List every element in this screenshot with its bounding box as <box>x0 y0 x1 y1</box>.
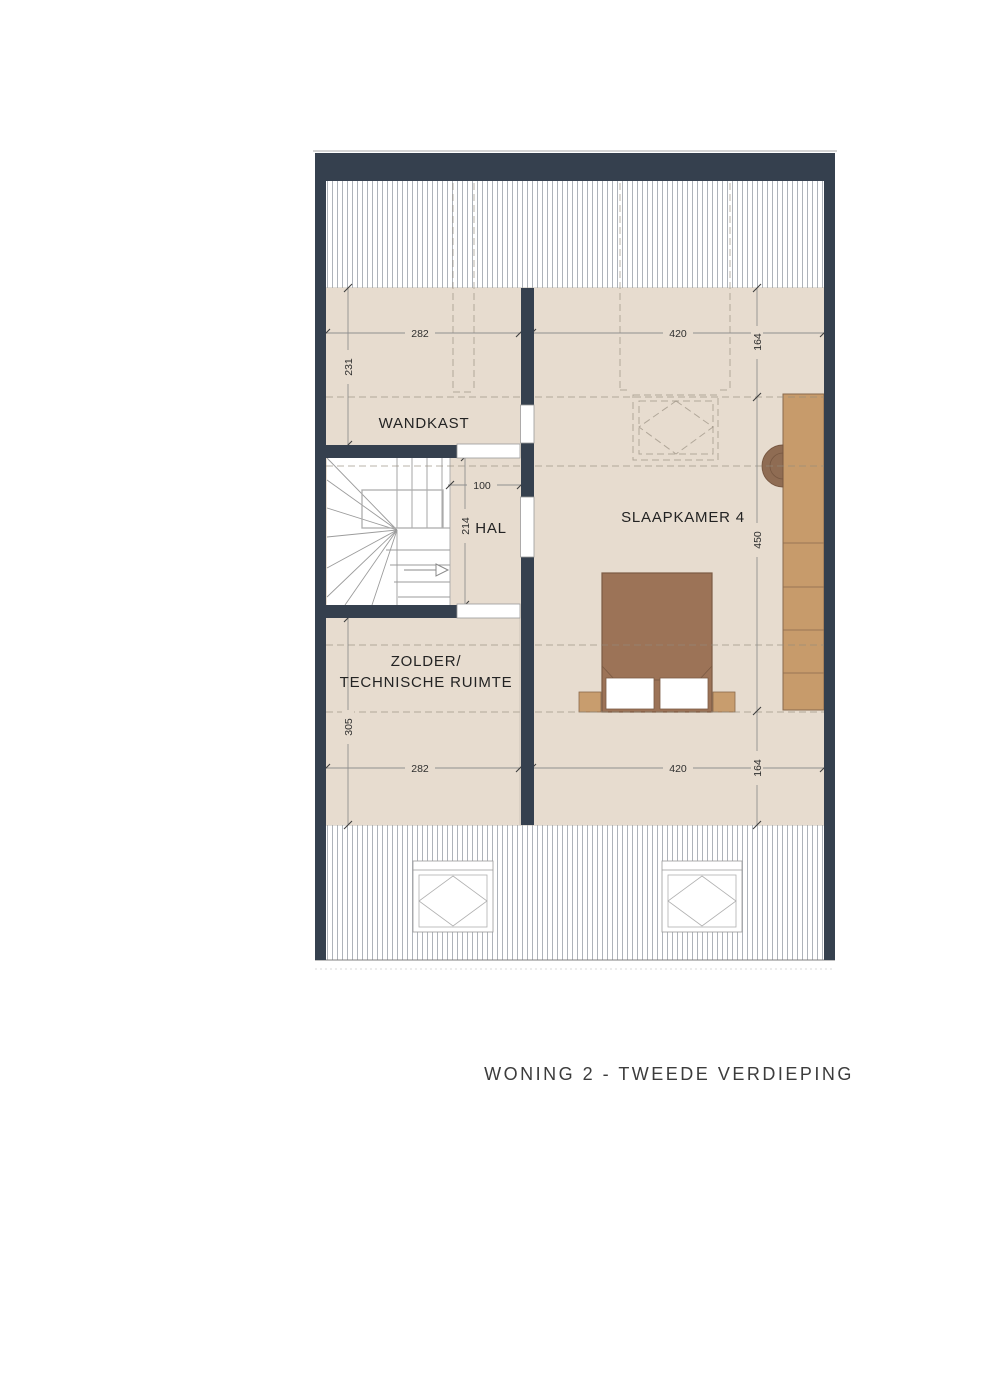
dim-hal-width: 100 <box>473 480 491 492</box>
skylight-left <box>413 861 493 932</box>
staircase <box>327 457 450 605</box>
door-wandkast-bedroom <box>521 405 535 443</box>
label-slaapkamer4: SLAAPKAMER 4 <box>621 509 745 526</box>
pillow-right <box>660 678 708 709</box>
wardrobe <box>783 394 824 710</box>
dim-right-top: 164 <box>752 333 764 351</box>
wall-bedroom-west-2 <box>521 443 534 497</box>
label-zolder-line2: TECHNISCHE RUIMTE <box>340 674 513 691</box>
floorplan-page: 282 420 164 231 100 214 450 305 282 420 … <box>0 0 990 1400</box>
door-hal-wandkast <box>457 444 520 458</box>
wall-left <box>315 153 326 960</box>
bed <box>602 573 712 712</box>
dim-right-middle: 450 <box>752 531 764 549</box>
wall-zolder-north <box>326 605 457 618</box>
skylight-right <box>662 861 742 932</box>
door-hal-bedroom <box>521 497 535 557</box>
dim-zolder-depth: 305 <box>343 718 355 736</box>
floorplan-drawing: 282 420 164 231 100 214 450 305 282 420 … <box>0 0 990 1400</box>
dim-bottom-right: 420 <box>669 763 687 775</box>
wall-wandkast-south <box>326 445 457 458</box>
label-wandkast: WANDKAST <box>379 415 470 432</box>
nightstand-left <box>579 692 601 712</box>
wall-bedroom-west-3 <box>521 557 534 825</box>
dim-bottom-left: 282 <box>411 763 429 775</box>
roof-hatch-bottom <box>315 825 835 969</box>
roof-hatch-top <box>326 181 824 288</box>
label-hal: HAL <box>475 520 507 537</box>
dim-wandkast-depth: 231 <box>343 358 355 376</box>
dim-top-left: 282 <box>411 328 429 340</box>
door-hal-zolder <box>457 604 520 618</box>
wall-bedroom-west-1 <box>521 288 534 405</box>
dim-right-bottom: 164 <box>752 759 764 777</box>
wall-right <box>824 153 835 960</box>
drawing-title: WONING 2 - TWEEDE VERDIEPING <box>484 1064 854 1084</box>
dim-top-right: 420 <box>669 328 687 340</box>
label-zolder-line1: ZOLDER/ <box>391 653 462 670</box>
nightstand-right <box>713 692 735 712</box>
dim-hal-depth: 214 <box>460 517 472 535</box>
pillow-left <box>606 678 654 709</box>
wall-top <box>315 153 835 181</box>
